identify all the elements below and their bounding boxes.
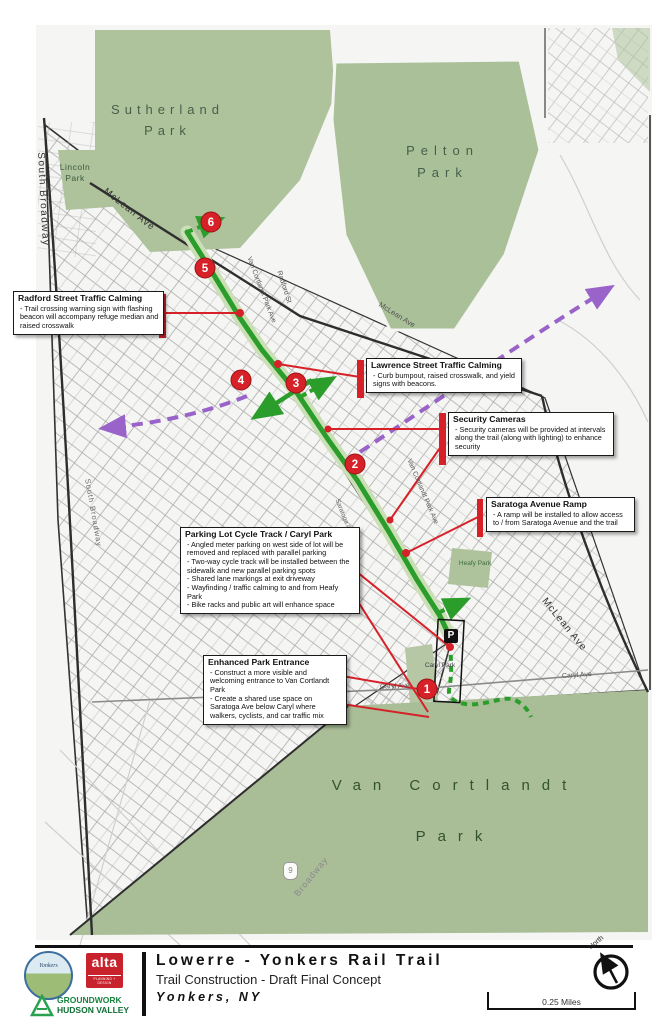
callout-security-cameras: Security Cameras - Security cameras will… (448, 412, 614, 456)
scale-bar: 0.25 Miles (487, 992, 636, 1010)
title-block-divider (142, 952, 146, 1016)
trail-marker-1: 1 (417, 679, 437, 699)
map-subtitle: Trail Construction - Draft Final Concept (156, 972, 381, 987)
callout-title: Saratoga Avenue Ramp (491, 500, 630, 510)
svg-text:6: 6 (208, 217, 214, 229)
callout-title: Radford Street Traffic Calming (18, 294, 159, 304)
callout-body-line: - Construct a more visible and welcoming… (208, 669, 342, 695)
north-arrow-icon (588, 948, 634, 994)
trail-marker-4: 4 (231, 370, 251, 390)
callout-enhanced-park-entrance: Enhanced Park Entrance - Construct a mor… (203, 655, 347, 725)
heafy-park-area (448, 548, 492, 588)
map-location: Yonkers, NY (156, 990, 262, 1004)
trail-marker-2: 2 (345, 454, 365, 474)
callout-title: Lawrence Street Traffic Calming (371, 361, 517, 371)
trail-marker-3: 3 (286, 373, 306, 393)
map-title: Lowerre - Yonkers Rail Trail (156, 952, 443, 970)
callout-lawrence-street-traffic-calming: Lawrence Street Traffic Calming - Curb b… (366, 358, 522, 393)
parking-icon: P (444, 629, 458, 643)
svg-text:3: 3 (293, 378, 299, 390)
callout-body-line: - Bike racks and public art will enhance… (185, 601, 355, 610)
footer-divider-rule (35, 945, 633, 948)
groundwork-logo-line2: HUDSON VALLEY (57, 1006, 129, 1016)
svg-text:4: 4 (238, 375, 245, 387)
callout-title: Parking Lot Cycle Track / Caryl Park (185, 530, 355, 540)
trail-marker-5: 5 (195, 258, 215, 278)
svg-text:1: 1 (424, 684, 431, 696)
callout-saratoga-avenue-ramp: Saratoga Avenue Ramp - A ramp will be in… (486, 497, 635, 532)
route-shield-icon: 9 (283, 862, 298, 880)
callout-body-line: - Two-way cycle track will be installed … (185, 558, 355, 575)
alta-logo-text: alta (86, 953, 123, 973)
svg-text:5: 5 (202, 263, 209, 275)
callout-body-line: - Angled meter parking on west side of l… (185, 541, 355, 558)
alta-logo: alta PLANNING + DESIGN (86, 953, 123, 988)
north-arrow: North (588, 948, 634, 994)
callout-body-line: - Create a shared use space on Saratoga … (208, 695, 342, 721)
callout-body-line: - Trail crossing warning sign with flash… (18, 305, 159, 331)
trail-marker-6: 6 (201, 212, 221, 232)
lincoln-park-area (58, 150, 138, 210)
map-poster: 6 5 4 3 2 1 Sutherland P (0, 0, 668, 1024)
groundwork-triangle-icon (30, 994, 54, 1018)
scale-label: 0.25 Miles (542, 997, 581, 1007)
alta-logo-subtext: PLANNING + DESIGN (88, 975, 121, 985)
callout-body-line: - A ramp will be installed to allow acce… (491, 511, 630, 528)
groundwork-logo: GROUNDWORK HUDSON VALLEY (30, 993, 129, 1019)
callout-body-line: - Curb bumpout, raised crosswalk, and yi… (371, 372, 517, 389)
yonkers-seal-text: Yonkers (26, 963, 71, 969)
callout-title: Security Cameras (453, 415, 609, 425)
svg-text:2: 2 (352, 459, 358, 471)
base-map: 6 5 4 3 2 1 (0, 0, 668, 945)
callout-body-line: - Wayfinding / traffic calming to and fr… (185, 584, 355, 601)
callout-body-line: - Security cameras will be provided at i… (453, 426, 609, 452)
callout-radford-street-traffic-calming: Radford Street Traffic Calming - Trail c… (13, 291, 164, 335)
callout-title: Enhanced Park Entrance (208, 658, 342, 668)
callout-parking-lot-cycle-track: Parking Lot Cycle Track / Caryl Park - A… (180, 527, 360, 614)
